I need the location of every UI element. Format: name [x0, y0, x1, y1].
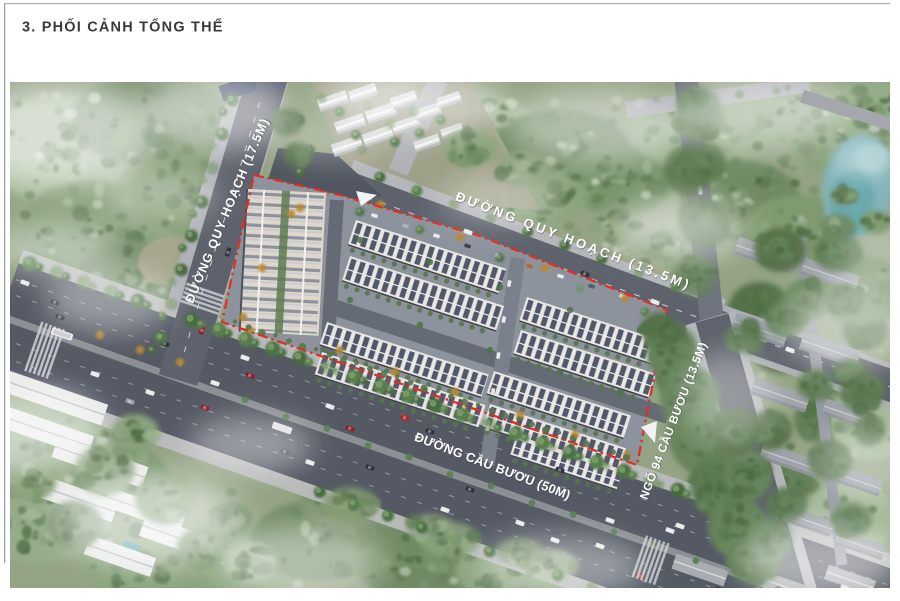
svg-text:3. PHỐI CẢNH TỔNG THỂ: 3. PHỐI CẢNH TỔNG THỂ — [22, 18, 224, 36]
